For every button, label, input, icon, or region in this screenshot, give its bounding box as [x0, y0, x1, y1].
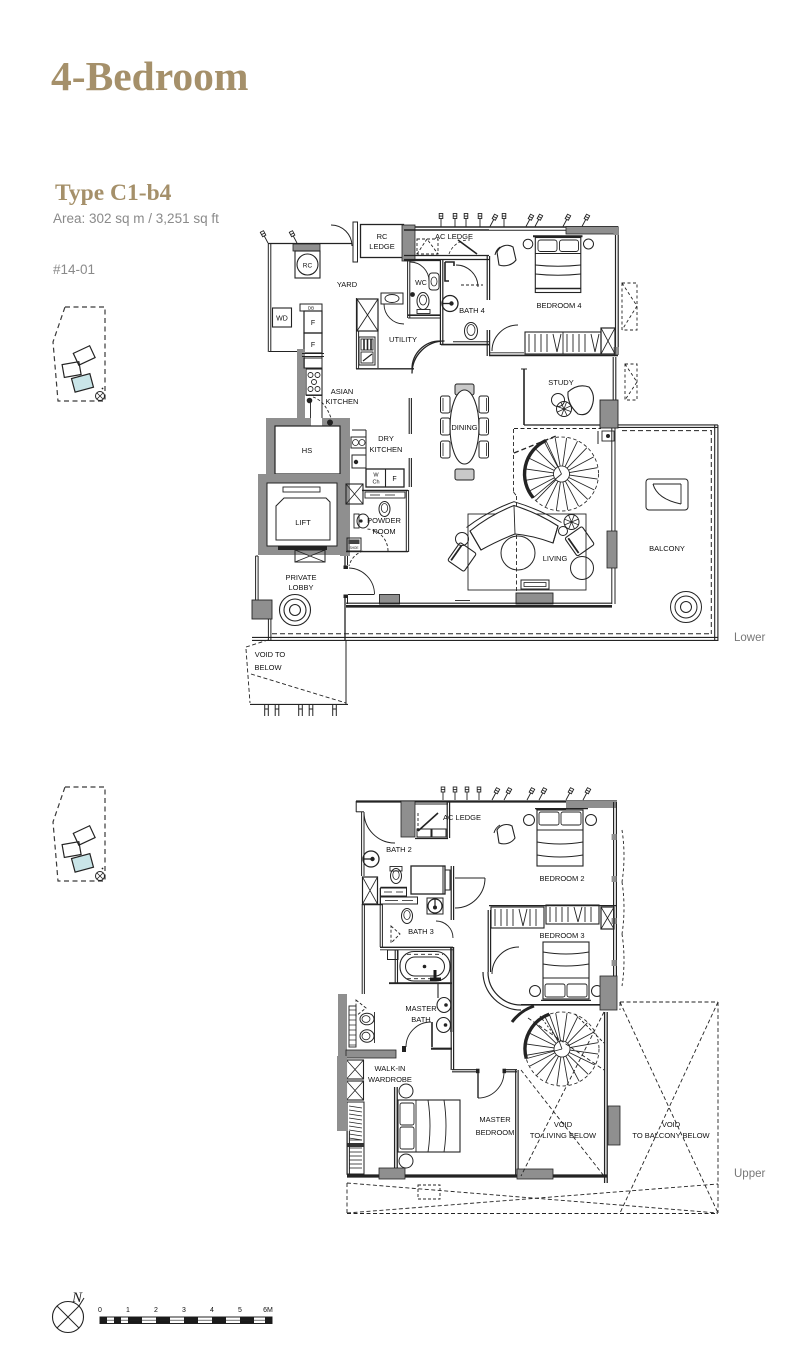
svg-text:SHOE: SHOE: [349, 546, 358, 550]
svg-text:YARD: YARD: [337, 280, 358, 289]
svg-text:F: F: [311, 342, 315, 349]
svg-text:Lower: Lower: [734, 632, 765, 644]
svg-text:BALCONY: BALCONY: [649, 544, 685, 553]
svg-text:4-Bedroom: 4-Bedroom: [51, 53, 249, 99]
svg-text:POWDER: POWDER: [367, 516, 401, 525]
svg-text:0: 0: [98, 1307, 102, 1314]
svg-text:Area: 302 sq m / 3,251 sq ft: Area: 302 sq m / 3,251 sq ft: [53, 211, 219, 226]
svg-text:F: F: [392, 476, 396, 483]
svg-text:VOID: VOID: [554, 1120, 573, 1129]
svg-text:DRY: DRY: [378, 434, 394, 443]
svg-text:LIFT: LIFT: [295, 518, 311, 527]
svg-text:RC: RC: [303, 263, 313, 270]
svg-text:RC: RC: [377, 232, 388, 241]
svg-text:BEDROOM: BEDROOM: [476, 1128, 515, 1137]
svg-text:LEDGE: LEDGE: [369, 242, 394, 251]
svg-text:LIVING: LIVING: [543, 554, 568, 563]
svg-text:MASTER: MASTER: [479, 1115, 511, 1124]
svg-text:AC LEDGE: AC LEDGE: [443, 813, 481, 822]
svg-text:WD: WD: [276, 316, 288, 323]
svg-text:N: N: [71, 1290, 83, 1306]
svg-text:3: 3: [182, 1307, 186, 1314]
svg-text:WC: WC: [415, 280, 427, 287]
svg-text:Upper: Upper: [734, 1168, 765, 1180]
svg-text:VOID TO: VOID TO: [255, 650, 286, 659]
svg-text:VOID: VOID: [662, 1120, 681, 1129]
svg-text:BATH 4: BATH 4: [459, 306, 485, 315]
svg-text:TO BALCONY BELOW: TO BALCONY BELOW: [632, 1131, 710, 1140]
svg-text:2: 2: [154, 1307, 158, 1314]
svg-text:KITCHEN: KITCHEN: [326, 397, 359, 406]
svg-text:ROOM: ROOM: [372, 527, 395, 536]
svg-text:KITCHEN: KITCHEN: [370, 445, 403, 454]
svg-text:BEDROOM 3: BEDROOM 3: [539, 931, 584, 940]
svg-text:LOBBY: LOBBY: [288, 583, 313, 592]
svg-text:STUDY: STUDY: [548, 378, 573, 387]
svg-text:ASIAN: ASIAN: [331, 387, 354, 396]
svg-text:BELOW: BELOW: [254, 663, 282, 672]
svg-text:#14-01: #14-01: [53, 262, 95, 277]
svg-text:BEDROOM 2: BEDROOM 2: [539, 874, 584, 883]
svg-text:6M: 6M: [263, 1307, 273, 1314]
svg-text:BATH: BATH: [411, 1015, 430, 1024]
svg-text:DB: DB: [308, 306, 314, 311]
svg-text:WARDROBE: WARDROBE: [368, 1075, 412, 1084]
svg-text:Ch: Ch: [372, 480, 379, 486]
svg-text:Type C1-b4: Type C1-b4: [55, 180, 172, 206]
svg-text:4: 4: [210, 1307, 214, 1314]
svg-text:MASTER: MASTER: [405, 1004, 437, 1013]
svg-text:HS: HS: [302, 446, 312, 455]
svg-text:AC LEDGE: AC LEDGE: [435, 232, 473, 241]
svg-text:TO LIVING BELOW: TO LIVING BELOW: [530, 1131, 597, 1140]
svg-text:BATH 3: BATH 3: [408, 927, 434, 936]
svg-text:F: F: [311, 320, 315, 327]
svg-text:BEDROOM 4: BEDROOM 4: [536, 301, 581, 310]
svg-text:1: 1: [126, 1307, 130, 1314]
svg-text:UTILITY: UTILITY: [389, 335, 417, 344]
svg-text:W: W: [373, 473, 379, 479]
svg-text:WALK-IN: WALK-IN: [375, 1064, 406, 1073]
svg-text:PRIVATE: PRIVATE: [286, 573, 317, 582]
svg-text:BATH 2: BATH 2: [386, 845, 412, 854]
svg-text:5: 5: [238, 1307, 242, 1314]
svg-text:DINING: DINING: [451, 423, 477, 432]
